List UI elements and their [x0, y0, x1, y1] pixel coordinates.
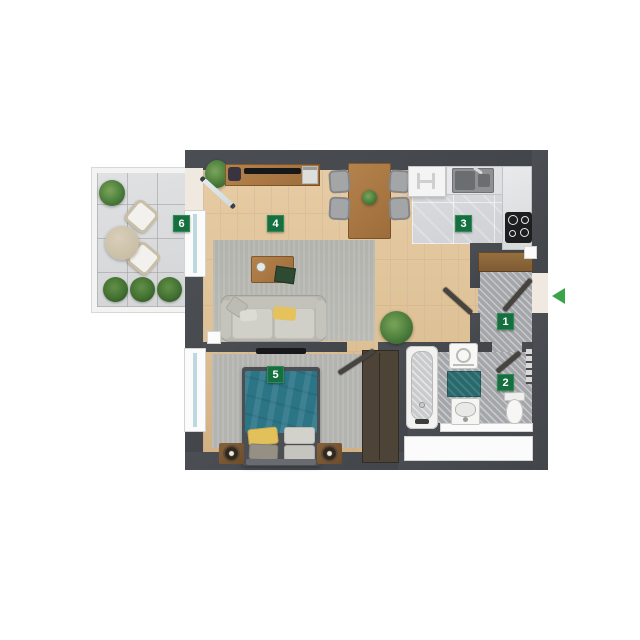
balcony-bush-1 — [103, 277, 128, 302]
floor-plan-canvas: 1 2 3 4 5 6 — [0, 0, 640, 640]
balcony-bush-3 — [157, 277, 182, 302]
sink-basin-large — [455, 171, 475, 190]
fridge — [408, 166, 446, 197]
utility-box — [524, 246, 537, 259]
sofa-pillow-yellow — [272, 306, 296, 321]
room-label-bedroom: 5 — [267, 366, 284, 383]
towel-radiator — [526, 347, 532, 384]
dining-chair-4 — [388, 196, 410, 220]
living-room-window-glass — [193, 214, 197, 273]
coffee-table-magazine — [274, 266, 296, 285]
room-label-living-room: 4 — [267, 215, 284, 232]
sink-basin-small — [478, 174, 490, 187]
bedroom-wardrobe — [362, 350, 399, 463]
bathroom-vanity — [451, 398, 480, 425]
bathtub-faucet — [415, 419, 429, 424]
kitchen-sink — [452, 168, 494, 193]
room-number-6: 6 — [178, 218, 184, 230]
vanity-sink-bowl — [455, 402, 476, 417]
nightstand-right-lamp — [321, 445, 338, 462]
washer-door — [456, 348, 471, 363]
sideboard-speaker — [228, 167, 241, 181]
washing-machine — [449, 343, 478, 369]
bathroom-window — [404, 436, 533, 461]
sofa-armrest-right — [316, 300, 326, 339]
nightstand-left — [219, 443, 244, 464]
sofa-pillow-light — [239, 309, 257, 322]
room-number-4: 4 — [272, 218, 278, 230]
room-label-balcony: 6 — [173, 215, 190, 232]
sideboard-books — [302, 166, 318, 184]
entrance-arrow-icon — [552, 288, 565, 304]
dining-chair-1 — [328, 169, 351, 193]
balcony-door-opening — [185, 168, 203, 212]
room-number-5: 5 — [272, 369, 278, 381]
cooktop — [505, 212, 532, 243]
fridge-handle-bar — [417, 180, 435, 183]
room-number-1: 1 — [502, 316, 508, 328]
balcony-plant — [99, 180, 125, 206]
room-label-bathroom: 2 — [497, 374, 514, 391]
burner-3 — [509, 230, 516, 237]
washer-panel — [453, 364, 474, 366]
bed-footboard — [246, 459, 316, 465]
burner-4 — [520, 228, 529, 237]
sofa — [221, 295, 326, 342]
bed-pillow-white-top — [284, 427, 315, 444]
bath-mat — [447, 371, 481, 397]
bathtub-drain — [419, 402, 425, 408]
vanity-faucet — [463, 417, 468, 422]
toilet-bowl — [506, 399, 523, 424]
balcony-table — [105, 226, 139, 260]
room-number-2: 2 — [502, 377, 508, 389]
bedroom-tv — [256, 348, 306, 354]
toilet — [504, 392, 525, 425]
dining-table-plant — [362, 190, 377, 205]
burner-2 — [521, 216, 529, 224]
room-label-hallway: 1 — [497, 313, 514, 330]
wardrobe-divider — [379, 353, 380, 460]
bedroom-window-glass — [193, 353, 197, 427]
entrance-opening — [532, 273, 548, 313]
room-label-kitchen: 3 — [455, 215, 472, 232]
room-number-3: 3 — [460, 218, 466, 230]
bathtub — [406, 346, 438, 429]
coffee-table-cup — [257, 263, 265, 271]
dining-chair-2 — [328, 196, 350, 220]
living-plant-hallway — [380, 311, 413, 344]
balcony-bush-2 — [130, 277, 155, 302]
wall-right-lower — [532, 313, 548, 470]
bathtub-basin — [411, 351, 433, 420]
bedroom-wall-radiator — [207, 331, 221, 344]
nightstand-right — [317, 443, 342, 464]
burner-1 — [508, 215, 518, 225]
tv-screen — [244, 168, 301, 174]
nightstand-left-lamp — [223, 445, 240, 462]
